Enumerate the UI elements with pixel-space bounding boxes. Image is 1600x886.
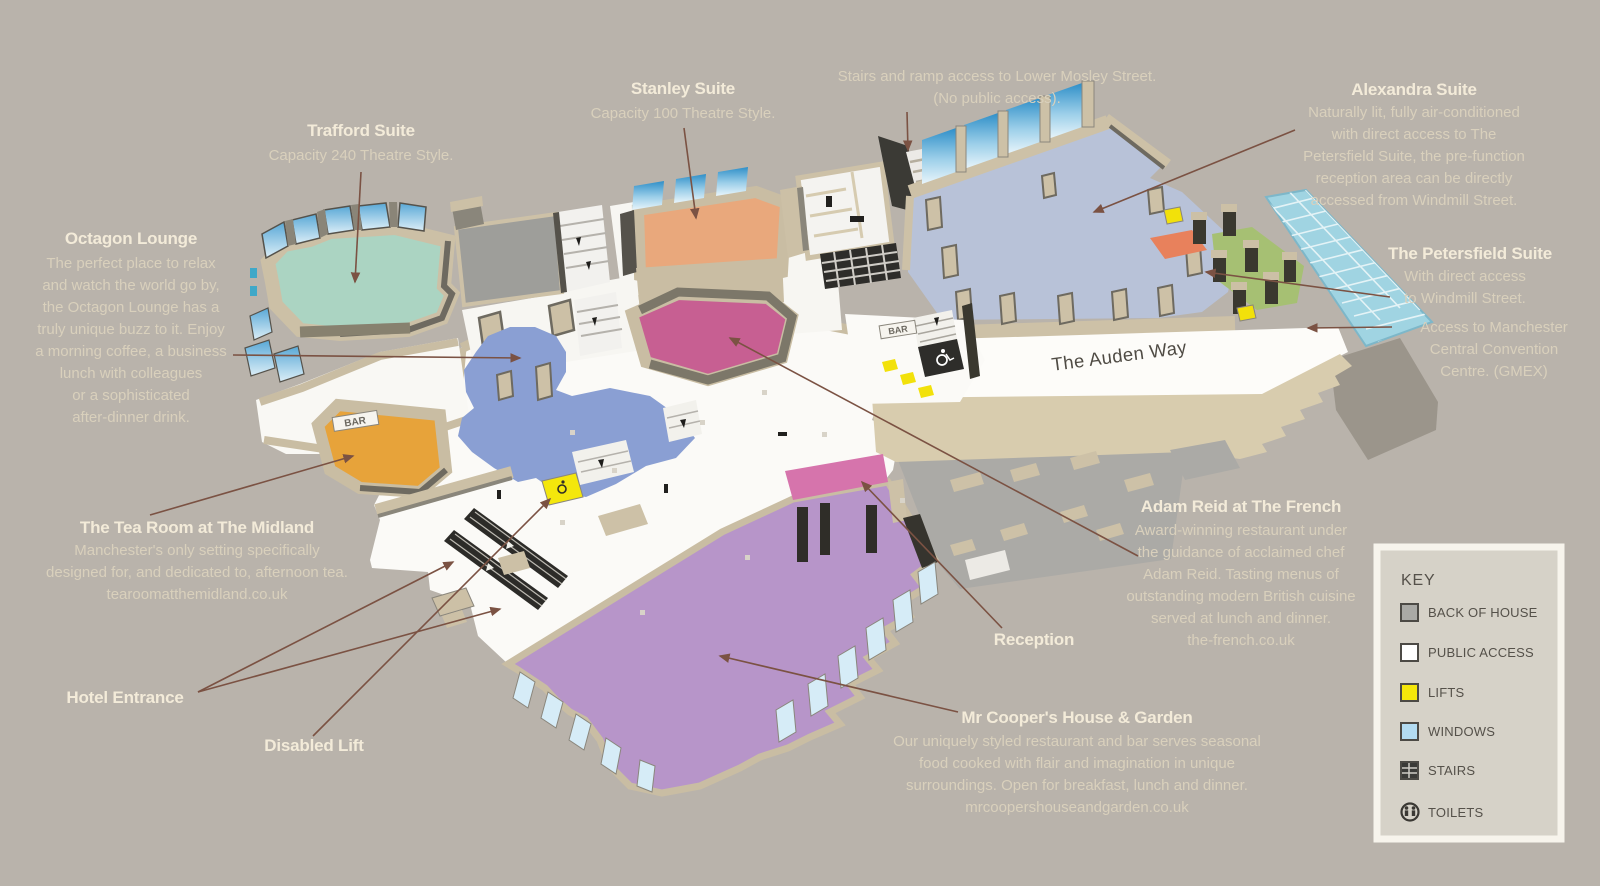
svg-text:(No public access).: (No public access). (933, 90, 1061, 107)
svg-text:designed for, and dedicated to: designed for, and dedicated to, afternoo… (46, 564, 348, 581)
svg-text:Octagon Lounge: Octagon Lounge (65, 229, 197, 248)
svg-text:Disabled Lift: Disabled Lift (264, 736, 364, 755)
svg-text:LIFTS: LIFTS (1428, 685, 1465, 700)
svg-text:Naturally lit, fully air-condi: Naturally lit, fully air-conditioned (1308, 104, 1520, 121)
svg-text:Stanley Suite: Stanley Suite (631, 79, 735, 98)
svg-text:Adam Reid at The French: Adam Reid at The French (1141, 497, 1341, 516)
svg-text:Centre. (GMEX): Centre. (GMEX) (1440, 363, 1548, 380)
svg-text:lunch with colleagues: lunch with colleagues (60, 365, 203, 382)
svg-text:Hotel Entrance: Hotel Entrance (66, 688, 183, 707)
svg-text:after-dinner drink.: after-dinner drink. (72, 409, 190, 426)
svg-text:truly unique buzz to it. Enjoy: truly unique buzz to it. Enjoy (37, 321, 225, 338)
svg-text:the guidance of acclaimed chef: the guidance of acclaimed chef (1138, 544, 1346, 561)
svg-text:outstanding modern British cui: outstanding modern British cuisine (1126, 588, 1355, 605)
svg-text:WINDOWS: WINDOWS (1428, 724, 1495, 739)
svg-text:Award-winning restaurant under: Award-winning restaurant under (1135, 522, 1347, 539)
svg-text:to Windmill Street.: to Windmill Street. (1404, 290, 1526, 307)
svg-text:KEY: KEY (1401, 572, 1435, 589)
svg-text:surroundings. Open for breakfa: surroundings. Open for breakfast, lunch … (906, 777, 1248, 794)
svg-text:PUBLIC ACCESS: PUBLIC ACCESS (1428, 645, 1534, 660)
svg-text:Access to Manchester: Access to Manchester (1420, 319, 1568, 336)
svg-text:a morning coffee, a business: a morning coffee, a business (35, 343, 227, 360)
svg-text:Capacity 100 Theatre Style.: Capacity 100 Theatre Style. (591, 105, 776, 122)
svg-text:The Petersfield Suite: The Petersfield Suite (1388, 244, 1552, 263)
svg-text:and watch the world go by,: and watch the world go by, (42, 277, 219, 294)
svg-text:tearoomatthemidland.co.uk: tearoomatthemidland.co.uk (107, 586, 288, 603)
svg-text:Our uniquely styled restaurant: Our uniquely styled restaurant and bar s… (893, 733, 1261, 750)
svg-text:Reception: Reception (994, 630, 1074, 649)
svg-text:or a sophisticated: or a sophisticated (72, 387, 190, 404)
svg-text:Central Convention: Central Convention (1430, 341, 1558, 358)
svg-text:Stairs and ramp access to Lowe: Stairs and ramp access to Lower Mosley S… (838, 68, 1156, 85)
svg-text:Trafford Suite: Trafford Suite (307, 121, 415, 140)
svg-text:the Octagon Lounge has a: the Octagon Lounge has a (43, 299, 220, 316)
svg-text:With direct access: With direct access (1404, 268, 1526, 285)
svg-text:Adam Reid. Tasting menus of: Adam Reid. Tasting menus of (1143, 566, 1339, 583)
svg-text:mrcoopershouseandgarden.co.uk: mrcoopershouseandgarden.co.uk (965, 799, 1189, 816)
svg-text:reception area can be directly: reception area can be directly (1316, 170, 1513, 187)
svg-text:with direct access to The: with direct access to The (1331, 126, 1497, 143)
svg-text:Petersfield Suite, the pre-fun: Petersfield Suite, the pre-function (1303, 148, 1525, 165)
svg-text:food cooked with flair and ima: food cooked with flair and imagination i… (919, 755, 1235, 772)
svg-text:Manchester's only setting spec: Manchester's only setting specifically (74, 542, 320, 559)
svg-text:accessed from Windmill Street.: accessed from Windmill Street. (1311, 192, 1518, 209)
svg-text:Alexandra Suite: Alexandra Suite (1351, 80, 1477, 99)
svg-text:the-french.co.uk: the-french.co.uk (1187, 632, 1295, 649)
svg-text:BACK OF HOUSE: BACK OF HOUSE (1428, 605, 1538, 620)
svg-text:The Tea Room at The Midland: The Tea Room at The Midland (80, 518, 314, 537)
svg-text:TOILETS: TOILETS (1428, 805, 1483, 820)
svg-text:served at lunch and dinner.: served at lunch and dinner. (1151, 610, 1331, 627)
svg-text:The perfect place to relax: The perfect place to relax (46, 255, 216, 272)
svg-text:Mr Cooper's House & Garden: Mr Cooper's House & Garden (961, 708, 1192, 727)
svg-text:STAIRS: STAIRS (1428, 763, 1475, 778)
svg-text:Capacity 240 Theatre Style.: Capacity 240 Theatre Style. (269, 147, 454, 164)
